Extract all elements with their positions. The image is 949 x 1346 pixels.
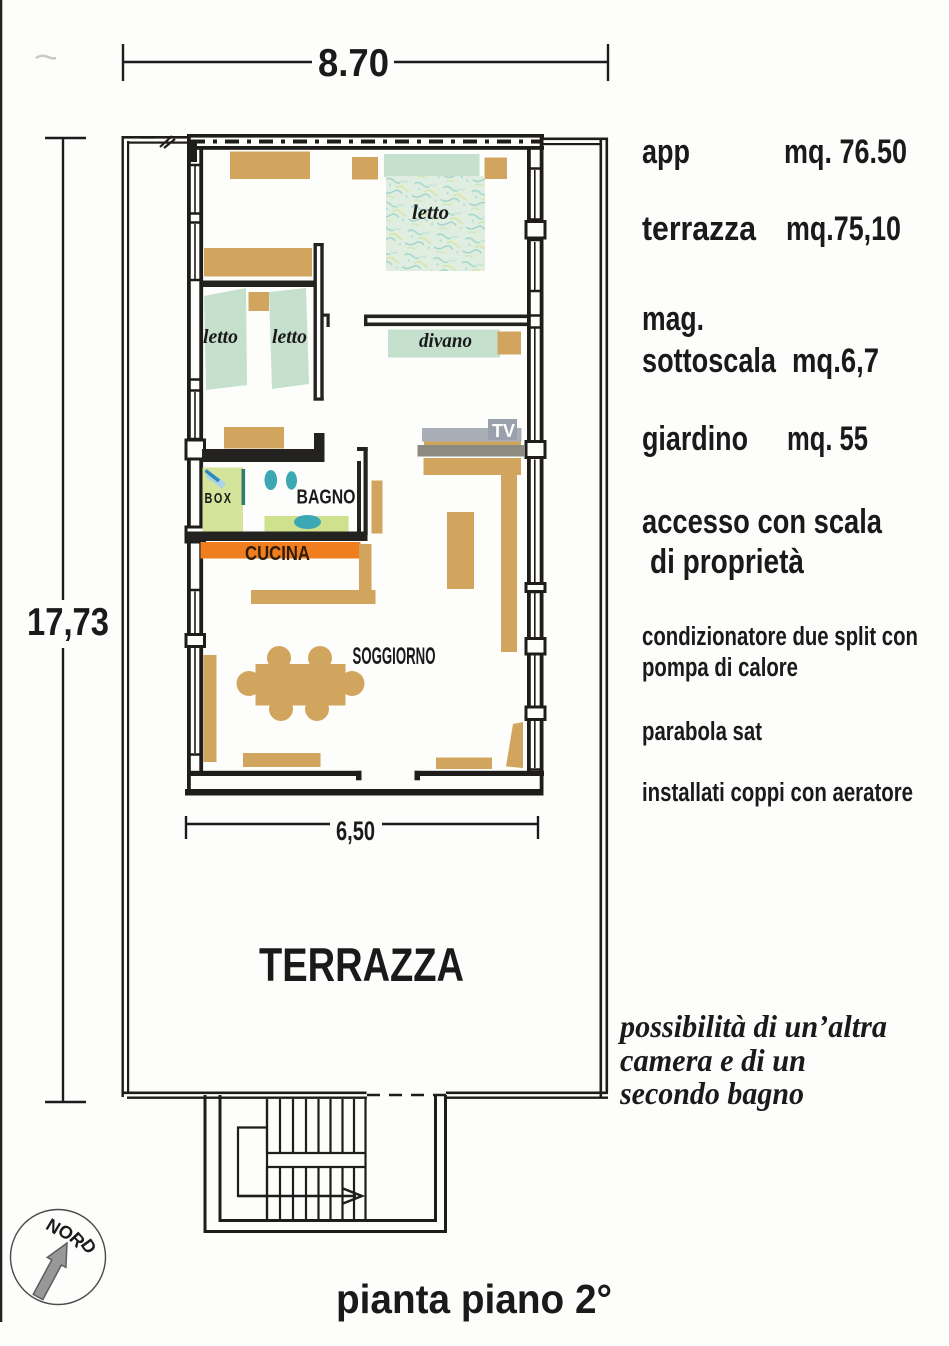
svg-text:app: app [642,133,690,171]
svg-text:condizionatore due split con: condizionatore due split con [642,623,918,651]
svg-text:parabola sat: parabola sat [642,718,762,746]
svg-text:BOX: BOX [205,491,233,507]
svg-text:letto: letto [203,326,238,348]
svg-text:giardino: giardino [642,420,748,458]
svg-text:BAGNO: BAGNO [297,486,356,509]
svg-text:pianta piano 2°: pianta piano 2° [336,1276,612,1322]
svg-text:letto: letto [412,200,449,224]
svg-text:camera e di un: camera e di un [620,1042,806,1078]
svg-text:di proprietà: di proprietà [650,543,804,581]
svg-text:mq.6,7: mq.6,7 [792,342,879,380]
svg-text:mq.75,10: mq.75,10 [786,210,901,248]
svg-text:mag.: mag. [642,300,704,338]
svg-text:secondo bagno: secondo bagno [619,1075,804,1111]
svg-text:accesso con scala: accesso con scala [642,503,883,541]
svg-text:installati coppi con aeratore: installati coppi con aeratore [642,779,913,807]
svg-text:TERRAZZA: TERRAZZA [259,938,464,991]
svg-text:17,73: 17,73 [27,601,109,644]
svg-text:mq. 76.50: mq. 76.50 [784,133,907,171]
svg-text:SOGGIORNO: SOGGIORNO [353,643,436,670]
svg-text:8.70: 8.70 [318,42,389,85]
svg-text:mq. 55: mq. 55 [787,420,868,458]
svg-text:sottoscala: sottoscala [642,342,777,380]
svg-text:terrazza: terrazza [642,210,757,248]
svg-text:divano: divano [419,330,472,352]
svg-text:6,50: 6,50 [336,816,375,846]
svg-text:letto: letto [272,326,307,348]
svg-text:TV: TV [492,420,516,441]
svg-text:possibilità di un’altra: possibilità di un’altra [617,1008,887,1044]
svg-text:CUCINA: CUCINA [245,543,310,565]
svg-text:pompa di calore: pompa di calore [642,654,798,682]
